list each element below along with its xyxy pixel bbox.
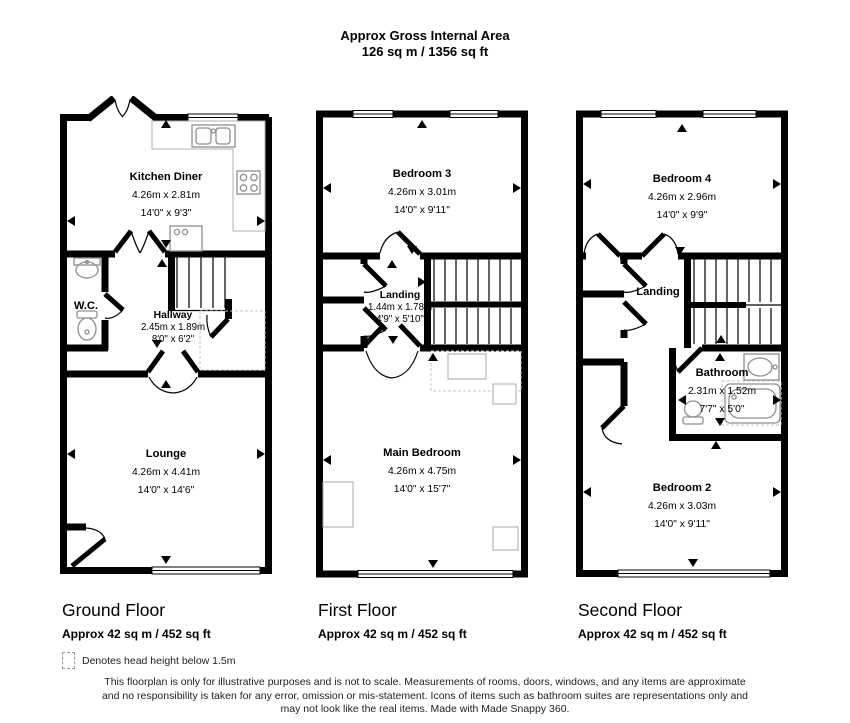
floor-area: Approx 42 sq m / 452 sq ft [318,627,467,641]
ground-floor-plan: Kitchen Diner 4.26m x 2.81m 14'0" x 9'3"… [60,96,272,578]
kitchen-sink-icon [192,125,235,147]
floor-name: First Floor [318,600,467,621]
door-bedroom4-right [642,234,678,256]
svg-text:2.45m x 1.89m: 2.45m x 1.89m [141,322,205,333]
svg-text:14'0" x 14'6": 14'0" x 14'6" [138,485,195,496]
svg-text:4.26m x 3.01m: 4.26m x 3.01m [388,187,456,198]
disclaimer-line: This floorplan is only for illustrative … [0,676,850,690]
room-label-hallway: Hallway 2.45m x 1.89m 8'0" x 6'2" [141,310,205,345]
gross-area-value: 126 sq m / 1356 sq ft [0,44,850,60]
disclaimer: This floorplan is only for illustrative … [0,676,850,717]
svg-text:4'9" x 5'10": 4'9" x 5'10" [376,314,424,325]
door-cupboard-top [364,264,386,292]
svg-text:7'7" x 5'0": 7'7" x 5'0" [699,404,744,415]
room-label-bedroom3: Bedroom 3 4.26m x 3.01m 14'0" x 9'11" [388,168,456,216]
second-floor-plan: Bedroom 4 4.26m x 2.96m 14'0" x 9'9" Lan… [576,106,788,578]
toilet-icon [77,311,97,340]
svg-text:14'0" x 15'7": 14'0" x 15'7" [394,484,451,495]
room-label-landing: Landing 1.44m x 1.78m 4'9" x 5'10" [368,290,432,325]
door-bedroom4-left [584,234,620,256]
gross-area-title: Approx Gross Internal Area [0,28,850,44]
door-lounge-entry [72,528,105,566]
svg-text:Kitchen Diner: Kitchen Diner [130,171,203,183]
svg-text:4.26m x 4.41m: 4.26m x 4.41m [132,467,200,478]
room-label-kitchen-diner: Kitchen Diner 4.26m x 2.81m 14'0" x 9'3" [130,171,203,219]
svg-text:Landing: Landing [380,290,420,301]
window [353,111,393,118]
appliance-icon [170,226,202,251]
hob-icon [237,171,260,194]
door-lounge-double [148,351,198,393]
first-floor-plan: Bedroom 3 4.26m x 3.01m 14'0" x 9'11" La… [316,104,528,578]
door-understairs [207,315,228,337]
stairs-icon [688,258,782,344]
legend-text: Denotes head height below 1.5m [82,655,236,667]
head-height-legend: Denotes head height below 1.5m [62,652,236,669]
window [601,111,656,118]
svg-text:14'0" x 9'3": 14'0" x 9'3" [141,208,192,219]
svg-text:Bedroom 4: Bedroom 4 [653,173,712,185]
disclaimer-line: may not look like the real items. Made w… [0,703,850,717]
room-label-lounge: Lounge 4.26m x 4.41m 14'0" x 14'6" [132,448,200,496]
floorplan-page: Approx Gross Internal Area 126 sq m / 13… [0,0,850,723]
svg-text:4.26m x 2.96m: 4.26m x 2.96m [648,192,716,203]
svg-text:14'0" x 9'9": 14'0" x 9'9" [657,210,708,221]
door-cupboard-bottom [624,302,646,330]
stairs-icon [171,257,228,311]
svg-text:8'0" x 6'2": 8'0" x 6'2" [152,334,195,345]
floor-area: Approx 42 sq m / 452 sq ft [62,627,211,641]
door-bedroom2 [602,406,624,444]
svg-text:4.26m x 3.03m: 4.26m x 3.03m [648,501,716,512]
room-label-bedroom2: Bedroom 2 4.26m x 3.03m 14'0" x 9'11" [648,482,716,530]
svg-text:1.44m x 1.78m: 1.44m x 1.78m [368,302,432,313]
floor-area: Approx 42 sq m / 452 sq ft [578,627,727,641]
page-title: Approx Gross Internal Area 126 sq m / 13… [0,28,850,60]
window [188,114,238,121]
disclaimer-line: and no responsibility is taken for any e… [0,690,850,704]
room-label-bedroom4: Bedroom 4 4.26m x 2.96m 14'0" x 9'9" [648,173,716,221]
second-floor-label: Second Floor Approx 42 sq m / 452 sq ft [578,600,727,641]
svg-text:Bathroom: Bathroom [696,367,749,379]
window [450,111,498,118]
svg-text:Hallway: Hallway [154,310,193,321]
svg-text:4.26m x 2.81m: 4.26m x 2.81m [132,190,200,201]
door-kitchen-double [115,231,165,253]
dashed-box-icon [62,652,75,669]
door-wc [105,294,123,318]
floor-name: Second Floor [578,600,727,621]
svg-text:Bedroom 3: Bedroom 3 [393,168,451,180]
floor-name: Ground Floor [62,600,211,621]
room-label-wc: W.C. [74,300,98,312]
bathroom-sink-icon [744,354,779,380]
head-height-zone [200,311,265,370]
ground-floor-label: Ground Floor Approx 42 sq m / 452 sq ft [62,600,211,641]
svg-text:2.31m x 1.52m: 2.31m x 1.52m [688,386,756,397]
svg-text:Bedroom 2: Bedroom 2 [653,482,711,494]
stairs-icon [428,258,522,344]
wc-sink-icon [74,258,100,278]
door-main-bedroom-double [364,325,420,378]
svg-text:Main Bedroom: Main Bedroom [383,447,461,459]
room-label-landing: Landing [636,286,680,298]
svg-text:Lounge: Lounge [146,448,186,460]
first-floor-label: First Floor Approx 42 sq m / 452 sq ft [318,600,467,641]
svg-text:4.26m x 4.75m: 4.26m x 4.75m [388,466,456,477]
svg-text:Landing: Landing [636,286,680,298]
svg-text:14'0" x 9'11": 14'0" x 9'11" [394,205,450,216]
window [358,571,513,578]
window [618,570,770,577]
svg-text:W.C.: W.C. [74,300,98,312]
svg-text:14'0" x 9'11": 14'0" x 9'11" [654,519,710,530]
room-label-main-bedroom: Main Bedroom 4.26m x 4.75m 14'0" x 15'7" [383,447,461,495]
entrance-bay-doors [115,100,130,117]
window [703,111,756,118]
window [152,567,260,574]
